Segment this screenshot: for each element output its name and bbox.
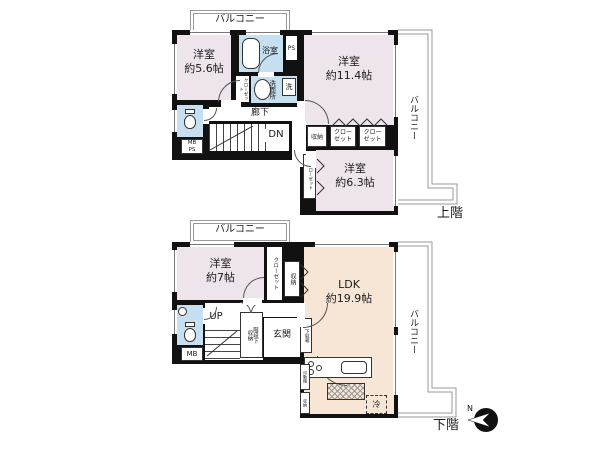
toilet-icon (185, 109, 195, 114)
compass-icon: N (466, 400, 502, 436)
window (315, 242, 389, 247)
window (172, 110, 177, 132)
upper-balcony-top-label: バルコニー (191, 14, 289, 27)
closet-1: クロー ゼット (330, 126, 356, 147)
upper-floor-label: 上階 (424, 206, 476, 222)
bedroom-7-label: 洋室 約7帖 (177, 257, 264, 285)
lower-balcony-top: バルコニー (190, 220, 290, 244)
window (172, 310, 177, 334)
corner-sink-icon (178, 307, 187, 316)
window (190, 242, 234, 247)
lower-storage-label: 収納 (289, 273, 295, 285)
lower-balcony-right-label: バルコニー (406, 300, 419, 362)
window (393, 335, 398, 395)
washer-box: 洗 (282, 78, 296, 96)
closet-2: クロー ゼット (359, 126, 386, 147)
kitchen-sink-icon (341, 361, 367, 374)
movable-shelf-label: 可動棚 (303, 371, 307, 383)
under-stairs-storage: 階段下 収納 (240, 312, 263, 358)
stair-direction-line (209, 124, 267, 151)
closet-2-label: クロー ゼット (363, 130, 381, 143)
movable-shelf: 可動棚 (300, 364, 310, 390)
closet-lower-label: クローゼット (272, 257, 278, 290)
refrigerator-label: 冷 (373, 399, 381, 410)
door-opening (297, 101, 305, 123)
bedroom-5-6-label: 洋室 約5.6帖 (177, 48, 231, 76)
kitchen-shelf-label: 収納 (303, 399, 307, 407)
shoe-cabinet-label: 下駄箱 (304, 329, 309, 343)
washer-label: 洗 (286, 82, 293, 92)
kitchen-shelf: 収納 (300, 392, 310, 414)
toilet-icon (184, 115, 196, 129)
lower-balcony-top-label: バルコニー (191, 224, 289, 237)
lower-meter-box-label: MB (187, 350, 198, 358)
stairs-dn-label: DN (263, 129, 289, 142)
under-stairs-storage-label: 階段下 収納 (246, 327, 257, 344)
upper-balcony-right-label: バルコニー (406, 86, 419, 148)
entrance-label: 玄関 (264, 330, 300, 341)
closet-1-label: クロー ゼット (334, 130, 352, 143)
bedroom-6-3-label: 洋室 約6.3帖 (316, 162, 394, 190)
window (246, 30, 280, 35)
ps-label: PS (284, 45, 299, 53)
bathroom-label: 浴室 (256, 46, 284, 56)
floor-plan: バルコニー バルコニー クローゼット 洗 MB PS (0, 0, 600, 450)
toilet-icon (185, 322, 195, 327)
bedroom-11-4-label: 洋室 約11.4帖 (304, 55, 394, 83)
folding-door-marks (331, 118, 389, 127)
lower-floor-label: 下階 (420, 418, 472, 434)
upper-storage-label: 収納 (311, 132, 323, 141)
stair-direction-line (205, 328, 240, 358)
lower-storage: 収納 (284, 261, 300, 297)
kitchen-island (327, 383, 365, 400)
toilet-icon (184, 328, 196, 342)
compass-n-label: N (467, 404, 473, 413)
upper-meter-box: MB PS (181, 139, 203, 154)
hallway-label: 廊下 (225, 108, 295, 119)
window (190, 30, 230, 35)
stove-burner-icon (316, 365, 322, 371)
window (312, 30, 388, 35)
door-opening (243, 298, 262, 305)
upper-meter-box-label: MB PS (188, 140, 197, 152)
closet-lower: クローゼット (267, 247, 282, 300)
ldk-label: LDK 約19.9帖 (304, 278, 394, 306)
washroom-label: 洗面所 (266, 76, 277, 103)
refrigerator: 冷 (366, 395, 387, 414)
lower-meter-box: MB (181, 347, 203, 361)
upper-storage: 収納 (307, 126, 327, 147)
